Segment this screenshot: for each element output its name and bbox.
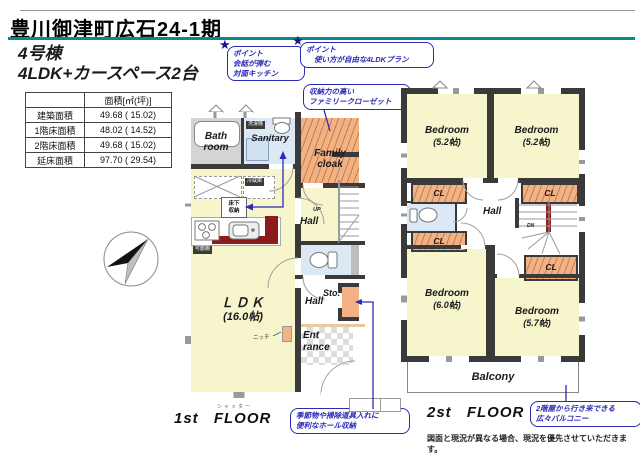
hall-lower-label: Hall — [305, 296, 323, 308]
window — [205, 392, 273, 398]
bedroom-size: (5.2帖) — [433, 137, 461, 147]
porch — [349, 398, 401, 412]
sanitary-label: Sanitary — [244, 134, 296, 145]
row-label: 延床面積 — [26, 153, 85, 168]
bedroom-name: Bedroom — [425, 125, 469, 137]
area-table-col-header: 面積[㎡(坪)] — [85, 93, 172, 108]
stove-icon — [195, 221, 219, 240]
flyer-page: { "colors":{ "accent_teal":"#0a8a8a", "c… — [0, 0, 640, 452]
north-arrow-icon — [100, 228, 162, 290]
bath-line: room — [204, 142, 229, 154]
niche-label: ニッチ — [253, 333, 270, 341]
table-row: 1階床面積 48.02 ( 14.52) — [26, 123, 172, 138]
niche-pointer — [273, 332, 281, 336]
roof-vent-icon — [209, 105, 223, 112]
floor2-plan: CL CL CL CL — [401, 88, 585, 398]
unit-plan-type: 4LDK+カースペース2台 — [18, 64, 198, 84]
callout-line: 広々バルコニー — [536, 414, 636, 424]
ldk-line: ＬＤＫ — [220, 296, 265, 311]
hall2-label: Hall — [483, 206, 501, 218]
callout-line: 便利なホール収納 — [296, 421, 404, 431]
window — [185, 195, 191, 215]
title-underline — [8, 37, 635, 40]
bedroom-size: (5.7帖) — [523, 318, 551, 328]
table-row: 2階床面積 49.68 ( 15.02) — [26, 138, 172, 153]
callout-kitchen: ポイント 会話が弾む 対面キッチン — [227, 46, 305, 81]
table-row: 延床面積 97.70 ( 29.54) — [26, 153, 172, 168]
star-icon: ★ — [219, 37, 231, 53]
entrance-line: Ent — [303, 330, 330, 342]
hall-upper-label: Hall — [300, 216, 318, 228]
family-line: Family — [314, 148, 346, 160]
toilet-icon — [410, 208, 437, 222]
window — [207, 112, 223, 118]
ldk-label: ＬＤＫ (16.0帖) — [191, 288, 295, 332]
family-cloak-label: Family cloak — [301, 136, 359, 182]
table-header-row: 面積[㎡(坪)] — [26, 93, 172, 108]
area-table-corner — [26, 93, 85, 108]
roof-vent-icon — [239, 105, 253, 112]
row-value: 48.02 ( 14.52) — [85, 123, 172, 138]
callout-tag: ポイント — [233, 49, 299, 59]
callout-plan: ポイント 使い方が自由な4LDKプラン — [300, 42, 434, 68]
toilet-icon — [310, 252, 337, 268]
shutter-label: シャッター — [217, 403, 252, 410]
star-icon: ★ — [292, 33, 304, 49]
callout-line: 収納力の高い — [309, 87, 405, 97]
row-value: 49.68 ( 15.02) — [85, 138, 172, 153]
washbasin-icon — [273, 118, 290, 134]
callout-line: 2階屋から行き来できる — [536, 404, 636, 414]
table-row: 建築面積 49.68 ( 15.02) — [26, 108, 172, 123]
callout-line: 使い方が自由な4LDKプラン — [306, 55, 428, 65]
top-rule — [20, 10, 635, 11]
floor2-caption: 2st FLOOR — [427, 404, 524, 421]
entrance-line: rance — [303, 342, 330, 354]
row-label: 1階床面積 — [26, 123, 85, 138]
bedroom-name: Bedroom — [515, 125, 559, 137]
dn-label: DN — [527, 224, 534, 230]
bedroom-size: (6.0帖) — [433, 300, 461, 310]
row-value: 49.68 ( 15.02) — [85, 108, 172, 123]
callout-line: 会話が弾む — [233, 59, 299, 69]
sink-icon — [229, 222, 259, 239]
callout-line: 対面キッチン — [233, 69, 299, 79]
area-table: 面積[㎡(坪)] 建築面積 49.68 ( 15.02) 1階床面積 48.02… — [25, 92, 172, 168]
window — [237, 112, 253, 118]
floor1-caption: 1st FLOOR — [174, 410, 271, 427]
up-label: UP — [313, 207, 321, 213]
roof-vent-icon — [527, 81, 541, 88]
callout-line: ファミリークローゼット — [309, 97, 405, 107]
balcony-label: Balcony — [472, 371, 515, 384]
bath-line: Bath — [205, 131, 227, 143]
callout-balcony: 2階屋から行き来できる 広々バルコニー — [530, 401, 640, 427]
entrance-label: Ent rance — [303, 330, 330, 353]
ldk-line: (16.0帖) — [223, 311, 263, 324]
callout-line: 季節物や掃除道具入れに — [296, 411, 404, 421]
storage-label: Sto. — [323, 288, 357, 298]
row-label: 建築面積 — [26, 108, 85, 123]
bedroom-1-label: Bedroom (5.2帖) — [407, 94, 487, 178]
floor1-plan: 冷蔵庫 床下 収納 可動棚 洗濯機 — [185, 112, 365, 398]
callout-tag: ポイント — [306, 45, 428, 55]
stairs-up — [338, 187, 359, 243]
bedroom-4-label: Bedroom (5.7帖) — [495, 278, 579, 356]
bedroom-3-label: Bedroom (6.0帖) — [407, 249, 487, 349]
row-label: 2階床面積 — [26, 138, 85, 153]
row-value: 97.70 ( 29.54) — [85, 153, 172, 168]
bathroom-label: Bath room — [191, 120, 241, 164]
bedroom-size: (5.2帖) — [523, 137, 551, 147]
balcony: Balcony — [407, 362, 579, 393]
porch-step-line — [380, 399, 381, 411]
callout-family-closet: 収納力の高い ファミリークローゼット — [303, 84, 411, 110]
bedroom-name: Bedroom — [515, 306, 559, 318]
family-line: cloak — [317, 159, 343, 171]
bedroom-name: Bedroom — [425, 288, 469, 300]
bedroom-2-label: Bedroom (5.2帖) — [494, 94, 579, 178]
roof-vent-icon — [433, 81, 447, 88]
unit-number: 4号棟 — [18, 44, 61, 64]
